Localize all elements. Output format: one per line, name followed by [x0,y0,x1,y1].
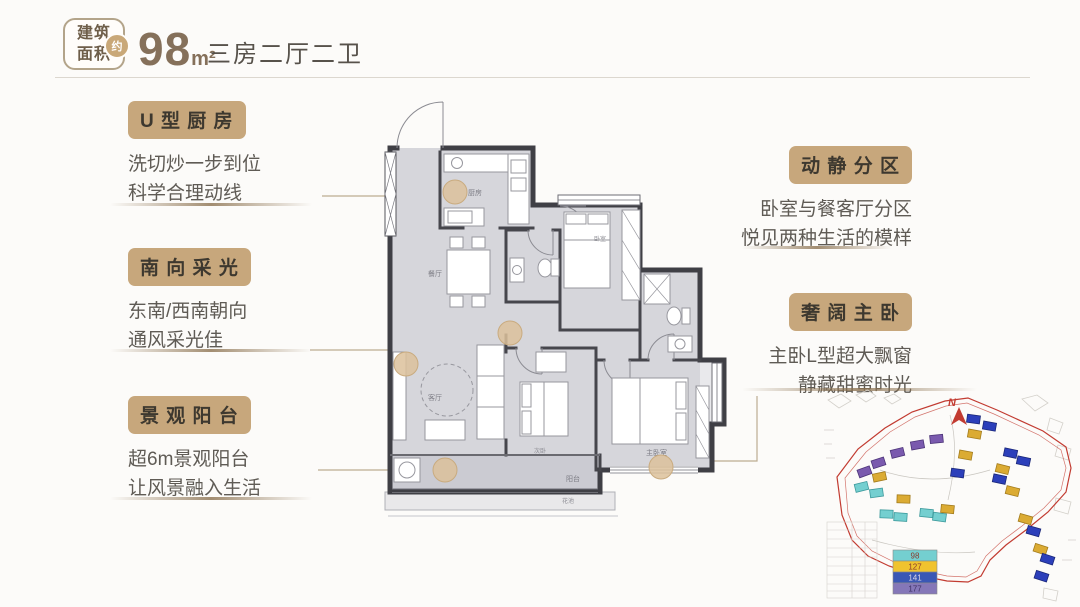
north-arrow: N [948,397,967,425]
north-label: N [948,397,957,409]
buildings-purple [857,434,943,478]
legend-value: 127 [908,563,922,572]
buildings-gold [872,429,1048,555]
legend-value: 141 [908,574,922,583]
legend-value: 177 [908,585,922,594]
site-map: N 98 127 141 177 [0,0,1080,607]
legend-value: 98 [911,552,920,561]
site-legend: 98 127 141 177 [893,550,937,594]
site-data-table [827,522,877,598]
site-context-sketches [824,390,1076,601]
buildings-blue [951,414,1055,582]
page: 建筑 面积 约 98m² 三房二厅二卫 U 型 厨 房 洗切炒一步到位 科学合理… [0,0,1080,607]
